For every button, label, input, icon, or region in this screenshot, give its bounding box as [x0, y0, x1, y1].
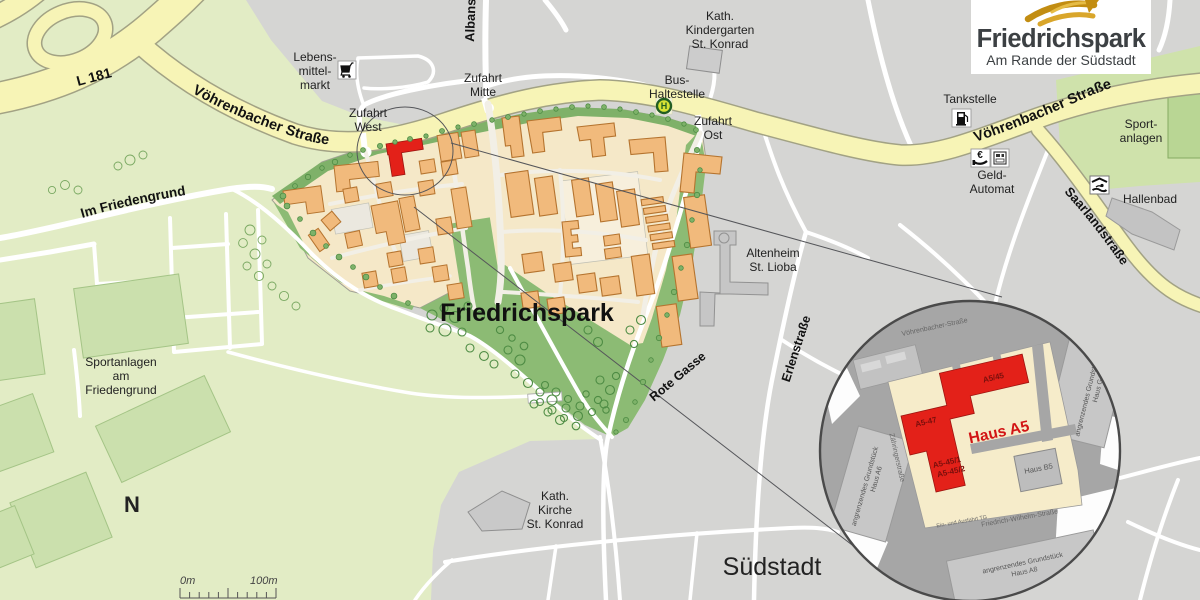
svg-text:H: H	[661, 101, 668, 111]
svg-text:€: €	[977, 150, 983, 161]
svg-text:Am Rande der Südstadt: Am Rande der Südstadt	[986, 52, 1136, 68]
svg-text:0m: 0m	[180, 575, 195, 587]
svg-text:AltenheimSt. Lioba: AltenheimSt. Lioba	[746, 246, 799, 274]
svg-text:Friedrichspark: Friedrichspark	[977, 25, 1147, 53]
svg-text:100m: 100m	[250, 575, 278, 587]
svg-text:Friedrichspark: Friedrichspark	[440, 299, 614, 327]
svg-text:Südstadt: Südstadt	[723, 553, 822, 581]
svg-text:Albanstraße: Albanstraße	[462, 0, 480, 42]
svg-text:Hallenbad: Hallenbad	[1123, 192, 1177, 206]
svg-text:N: N	[124, 492, 140, 517]
svg-text:Sport-anlagen: Sport-anlagen	[1120, 117, 1163, 145]
svg-text:Tankstelle: Tankstelle	[943, 92, 997, 106]
